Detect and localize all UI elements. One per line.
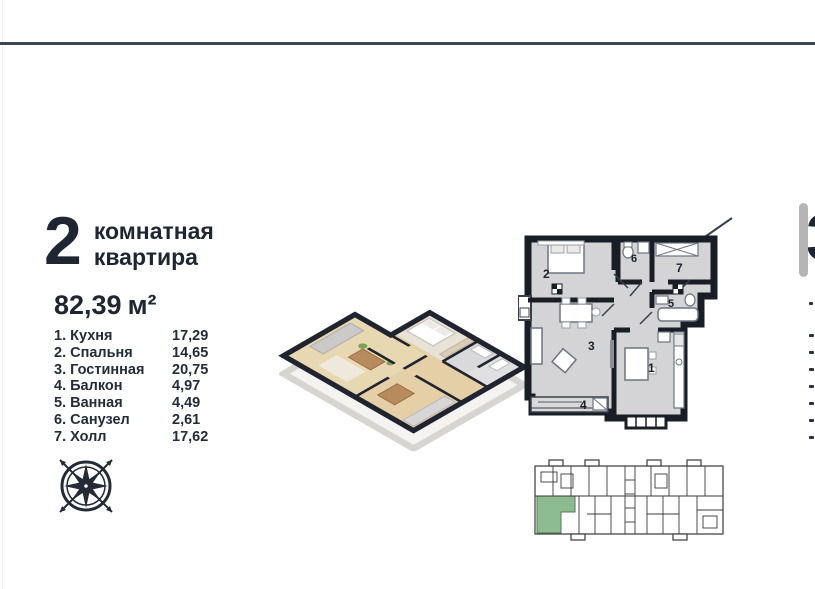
page-edge-line — [2, 0, 3, 589]
next-page-text-fragment — [809, 334, 814, 337]
room-list-item: 4. Балкон 4,97 — [54, 378, 224, 395]
plan2d-room-label: 4 — [580, 398, 587, 412]
room-name: 2. Спальня — [54, 345, 172, 362]
next-page-text-fragment — [809, 385, 814, 388]
room-list-item: 2. Спальня 14,65 — [54, 345, 224, 362]
plan2d-room-label: 2 — [543, 267, 550, 281]
total-area-unit: м² — [128, 290, 157, 320]
apartment-title: 2 комнатная квартира — [44, 210, 214, 272]
room-name: 7. Холл — [54, 429, 172, 446]
room-list-item: 5. Ванная 4,49 — [54, 395, 224, 412]
compass-rose-icon — [52, 452, 120, 520]
plan2d-room-label: 5 — [668, 298, 674, 310]
next-page-text-fragment — [809, 302, 813, 305]
room-list-item: 7. Холл 17,62 — [54, 429, 224, 446]
apartment-type-line2: квартира — [94, 244, 214, 270]
room-list: 1. Кухня 17,29 2. Спальня 14,65 3. Гости… — [54, 328, 224, 446]
total-area: 82,39м² — [54, 290, 157, 321]
room-area: 20,75 — [172, 362, 208, 379]
room-area: 4,49 — [172, 395, 200, 412]
room-name: 3. Гостинная — [54, 362, 172, 379]
room-name: 6. Санузел — [54, 412, 172, 429]
room-area: 17,29 — [172, 328, 208, 345]
next-page-text-fragment — [809, 419, 814, 422]
header-rule — [0, 42, 815, 45]
room-list-item: 6. Санузел 2,61 — [54, 412, 224, 429]
total-area-value: 82,39 — [54, 290, 122, 320]
room-name: 1. Кухня — [54, 328, 172, 345]
room-area: 17,62 — [172, 429, 208, 446]
room-area: 2,61 — [172, 412, 200, 429]
brochure-page: 2 комнатная квартира 82,39м² 1. Кухня 17… — [0, 0, 815, 589]
next-page-text-fragment — [809, 402, 814, 405]
floorplan-2d: 2 6 7 5 3 1 4 — [518, 212, 734, 438]
apartment-type: комнатная квартира — [94, 218, 214, 270]
room-area: 4,97 — [172, 378, 200, 395]
plan2d-room-label: 3 — [588, 339, 595, 353]
plan2d-room-label: 7 — [676, 261, 683, 275]
floorplan-3d-render — [236, 246, 530, 486]
next-page-text-fragment — [809, 368, 814, 371]
next-page-text-fragment — [809, 436, 814, 439]
room-name: 4. Балкон — [54, 378, 172, 395]
building-key-plan — [527, 450, 731, 550]
plan2d-room-label: 6 — [631, 253, 637, 265]
room-list-item: 3. Гостинная 20,75 — [54, 362, 224, 379]
rooms-count: 2 — [44, 210, 80, 272]
room-area: 14,65 — [172, 345, 208, 362]
next-page-text-fragment — [809, 351, 814, 354]
scrollbar-thumb[interactable] — [799, 203, 808, 277]
plan2d-room-label: 1 — [648, 361, 655, 375]
room-list-item: 1. Кухня 17,29 — [54, 328, 224, 345]
room-name: 5. Ванная — [54, 395, 172, 412]
apartment-type-line1: комнатная — [94, 218, 214, 244]
